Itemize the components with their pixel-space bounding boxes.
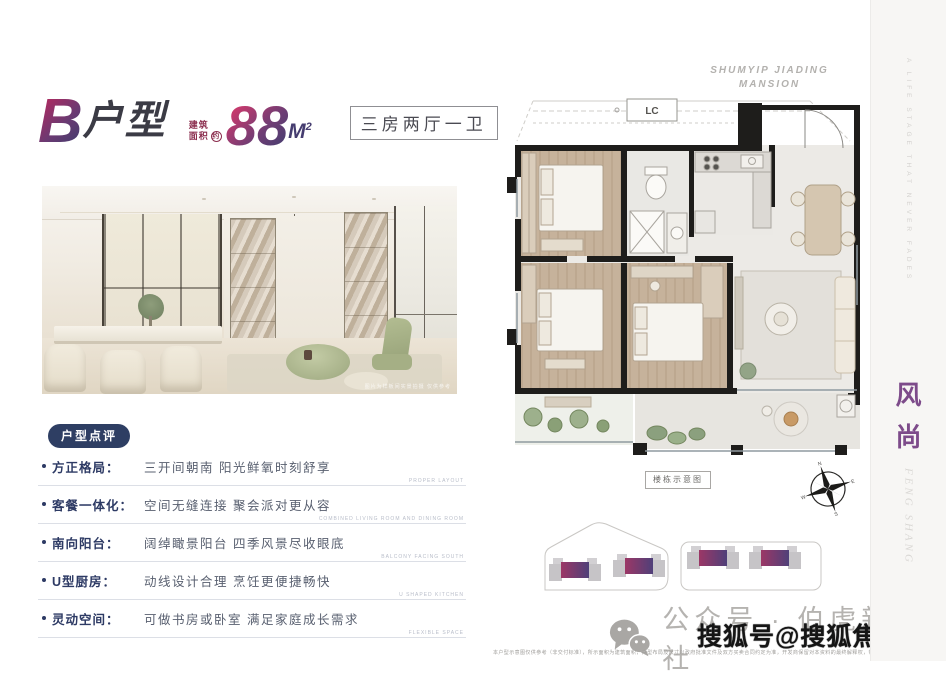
review-caption-en: COMBINED LIVING ROOM AND DINING ROOM: [319, 516, 464, 522]
project-name-en: SHUMYIP JIADING MANSION: [692, 64, 847, 92]
dining-chair: [100, 350, 146, 394]
svg-text:S: S: [834, 511, 840, 517]
sidebar-brand-en: FENG SHANG: [903, 468, 915, 565]
ceiling-spotlight: [292, 196, 296, 198]
review-text: 阔绰瞰景阳台 四季风景尽收眼底: [144, 533, 345, 552]
living-room-furniture: [735, 271, 855, 379]
review-label: 客餐一体化：: [52, 495, 144, 514]
ac-unit-label: LC: [615, 99, 677, 121]
svg-text:W: W: [800, 494, 807, 501]
project-name-line2: MANSION: [692, 78, 847, 92]
entry-door-arc: [805, 110, 843, 148]
dining-table: [54, 326, 222, 344]
area-value: 88: [226, 102, 288, 150]
sidebar-cn-char1: 风: [895, 382, 921, 408]
review-caption-en: BALCONY FACING SOUTH: [381, 554, 464, 560]
building-diagram-label: 楼栋示意图: [645, 471, 711, 489]
building-unit: [549, 558, 601, 581]
review-text: 动线设计合理 烹饪更便捷畅快: [144, 571, 331, 590]
review-row: U型厨房： 动线设计合理 烹饪更便捷畅快 U SHAPED KITCHEN: [38, 571, 466, 600]
area-prefix-line2: 面积: [189, 131, 209, 142]
ceiling-spotlight: [202, 198, 206, 200]
review-row: 灵动空间： 可做书房或卧室 满足家庭成长需求 FLEXIBLE SPACE: [38, 609, 466, 638]
brochure-page: B 户型 建筑 面积 约 88 M2 三房两厅一卫: [0, 0, 946, 661]
parcel-outline-left: [545, 523, 668, 590]
sidebar-brand-cn: 风 尚: [895, 382, 921, 450]
bullet-dot: [42, 464, 46, 468]
right-sidebar: A LIFE STAGE THAT NEVER FADES 风 尚 FENG S…: [870, 0, 946, 661]
review-label: U型厨房：: [52, 571, 144, 590]
table-plant: [138, 294, 164, 320]
sidebar-slogan-en: A LIFE STAGE THAT NEVER FADES: [905, 58, 912, 282]
review-caption-en: U SHAPED KITCHEN: [399, 592, 464, 598]
interior-photo: 图片为样板间实景拍摄 仅供参考: [42, 186, 457, 394]
review-label: 方正格局：: [52, 457, 144, 476]
unit-letter: B: [38, 94, 83, 150]
building-unit: [613, 554, 665, 577]
review-text: 空间无缝连接 聚会派对更从容: [144, 495, 331, 514]
area-prefix-line1: 建筑: [189, 120, 222, 131]
building-unit: [749, 546, 801, 569]
bullet-dot: [42, 616, 46, 620]
ceiling-spotlight: [372, 198, 376, 200]
unit-word: 户型: [83, 88, 167, 150]
area-prefix: 建筑 面积 约: [189, 120, 222, 150]
svg-text:N: N: [817, 461, 823, 468]
bullet-dot: [42, 540, 46, 544]
photo-caption: 图片为样板间实景拍摄 仅供参考: [365, 383, 451, 390]
area-unit: M2: [288, 120, 312, 150]
svg-text:LC: LC: [645, 106, 658, 117]
building-unit: [687, 546, 739, 569]
review-caption-en: FLEXIBLE SPACE: [409, 630, 464, 636]
review-caption-en: PROPER LAYOUT: [409, 478, 464, 484]
bullet-dot: [42, 502, 46, 506]
svg-text:E: E: [851, 478, 856, 485]
building-location-diagram: [535, 512, 830, 598]
floor-plan: LC: [505, 93, 870, 465]
review-label: 灵动空间：: [52, 609, 144, 628]
dining-chair: [44, 344, 86, 392]
project-name-line1: SHUMYIP JIADING: [692, 64, 847, 78]
marble-feature-panel: [230, 218, 276, 340]
review-text: 可做书房或卧室 满足家庭成长需求: [144, 609, 359, 628]
approx-circle: 约: [211, 131, 222, 142]
rooms-label-box: 三房两厅一卫: [350, 106, 498, 140]
green-coffee-table: [286, 344, 350, 380]
green-armchair-seat: [372, 354, 412, 370]
unit-header: B 户型 建筑 面积 约 88 M2 三房两厅一卫: [38, 88, 498, 150]
review-badge: 户型点评: [48, 424, 130, 448]
bullet-dot: [42, 578, 46, 582]
review-row: 方正格局： 三开间朝南 阳光鲜氧时刻舒享 PROPER LAYOUT: [38, 457, 466, 486]
review-text: 三开间朝南 阳光鲜氧时刻舒享: [144, 457, 331, 476]
sidebar-cn-char2: 尚: [895, 424, 921, 450]
review-section: 户型点评 方正格局： 三开间朝南 阳光鲜氧时刻舒享 PROPER LAYOUT …: [38, 424, 466, 638]
area-superscript: 2: [306, 121, 312, 133]
compass-icon: N E S W: [800, 461, 856, 517]
review-label: 南向阳台：: [52, 533, 144, 552]
review-row: 客餐一体化： 空间无缝连接 聚会派对更从容 COMBINED LIVING RO…: [38, 495, 466, 524]
corridor-wall: [282, 216, 344, 346]
marble-feature-panel: [344, 212, 388, 340]
review-row: 南向阳台： 阔绰瞰景阳台 四季风景尽收眼底 BALCONY FACING SOU…: [38, 533, 466, 562]
dining-chair: [160, 346, 202, 392]
area-group: 建筑 面积 约 88 M2: [189, 102, 312, 150]
